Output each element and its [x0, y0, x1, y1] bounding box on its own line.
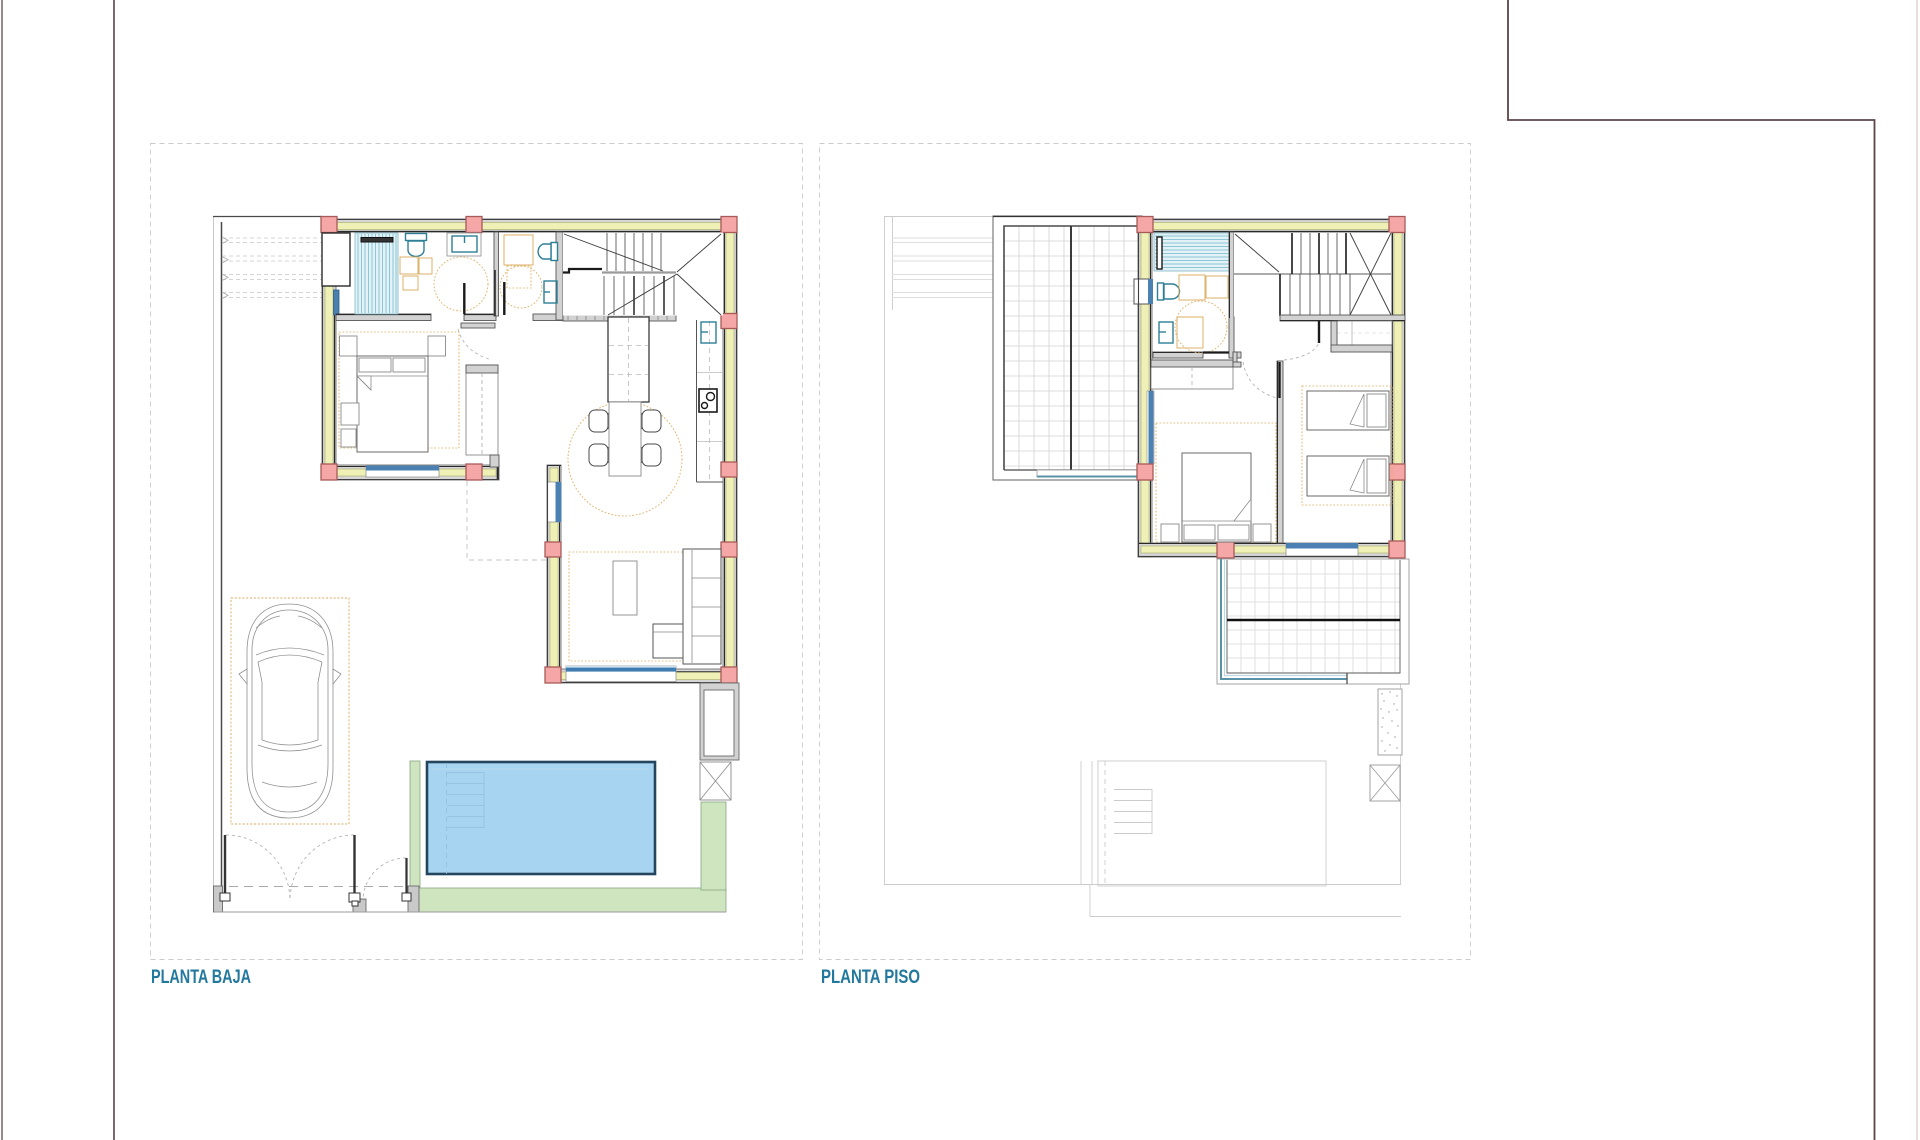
svg-text:PLANTA PISO: PLANTA PISO [821, 967, 920, 988]
svg-text:PLANTA BAJA: PLANTA BAJA [151, 967, 251, 988]
